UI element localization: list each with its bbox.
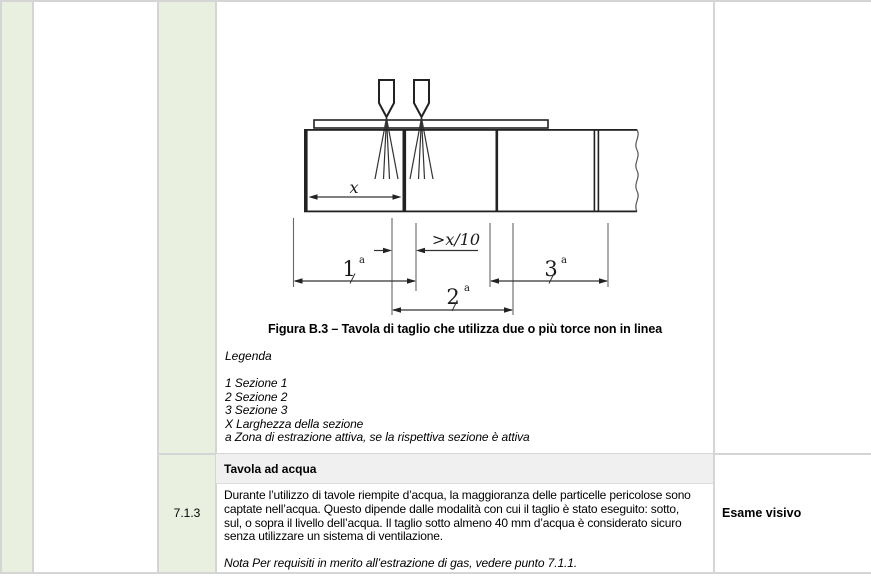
clause-note: Nota Per requisiti in merito all’estrazi… (224, 556, 577, 570)
label-zone1: 1 (342, 257, 355, 281)
torch2-icon (414, 80, 429, 117)
torch1-icon (379, 80, 394, 117)
legend-item-x: X Larghezza della sezione (225, 418, 530, 432)
clause-title: Tavola ad acqua (216, 462, 316, 476)
table-top-border (0, 0, 871, 2)
section-divider-1 (403, 130, 407, 212)
section-divider-3b (598, 130, 600, 212)
clause-number-cell: 7.1.3 (159, 454, 215, 572)
verification-cell: Esame visivo (715, 454, 871, 572)
torch-rail (314, 120, 548, 128)
legend-title: Legenda (225, 349, 272, 363)
label-zone3-footnote: a (561, 255, 567, 266)
dimension-zone3: 3 a (490, 255, 608, 284)
table-break-wavy-edge (636, 130, 638, 212)
legend-item-2: 2 Sezione 2 (225, 391, 530, 405)
dimension-zone2: 2 a (392, 283, 513, 313)
cutting-table-diagram: x >x/10 1 a (0, 55, 871, 322)
legend-item-3: 3 Sezione 3 (225, 404, 530, 418)
dimension-offset: >x/10 (374, 230, 480, 253)
standard-document-page: x >x/10 1 a (0, 0, 871, 578)
legend-item-1: 1 Sezione 1 (225, 377, 530, 391)
legend-item-a: a Zona di estrazione attiva, se la rispe… (225, 431, 530, 445)
clause-body-text: Durante l’utilizzo di tavole riempite d’… (224, 489, 721, 544)
label-x: x (349, 178, 358, 197)
dimension-x: x (309, 178, 402, 200)
label-zone2: 2 (446, 285, 459, 309)
table-outline (304, 129, 637, 212)
verification-method: Esame visivo (715, 506, 801, 520)
clause-title-band: Tavola ad acqua (216, 454, 713, 484)
label-zone1-footnote: a (359, 255, 365, 266)
figure-caption: Figura B.3 – Tavola di taglio che utiliz… (217, 322, 713, 336)
label-zone2-footnote: a (464, 283, 470, 294)
section-divider-2 (496, 130, 499, 212)
dimension-zone1: 1 a (294, 255, 417, 284)
legend-list: 1 Sezione 1 2 Sezione 2 3 Sezione 3 X La… (225, 377, 530, 445)
table-bottom-border (0, 572, 871, 574)
section-divider-3a (594, 130, 596, 212)
label-zone3: 3 (544, 257, 557, 281)
label-offset: >x/10 (432, 230, 480, 249)
